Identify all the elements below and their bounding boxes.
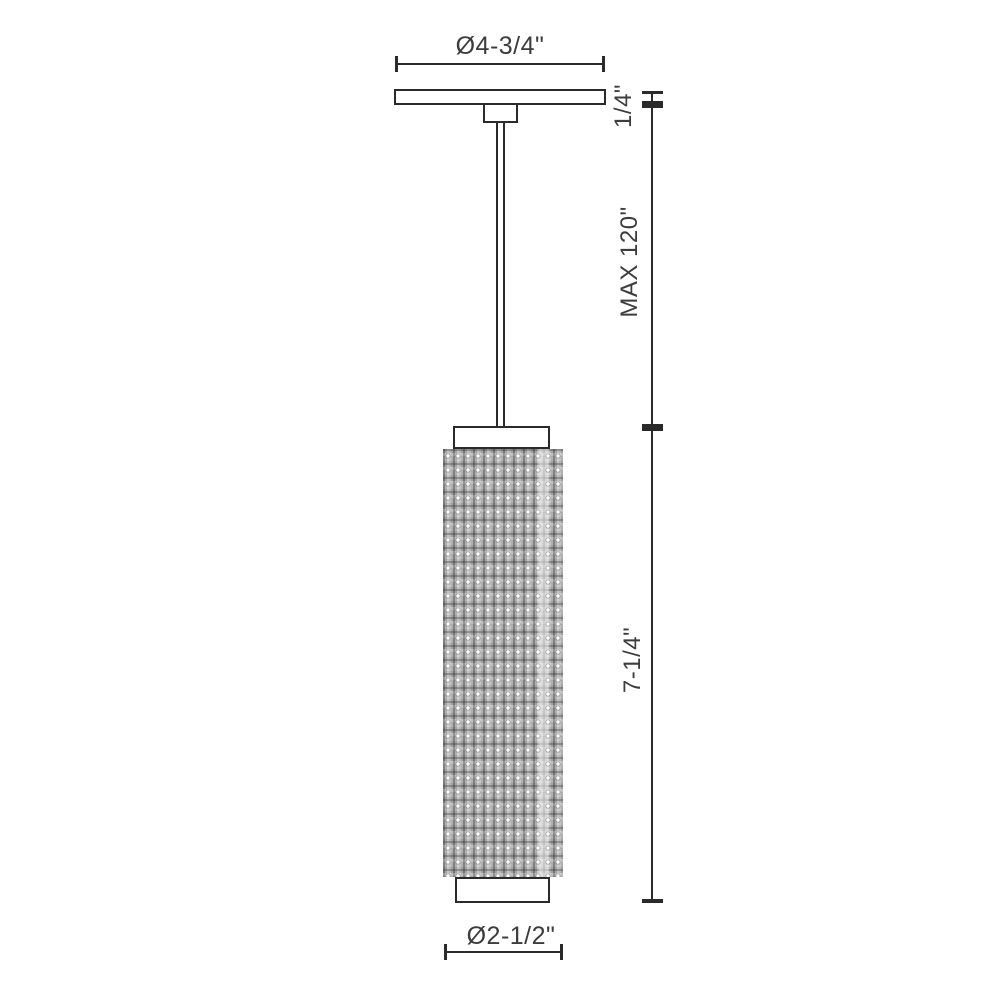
vertical-dimension-line [651,92,653,902]
canopy-diameter-label: Ø4-3/4" [396,32,604,61]
shade-top-cap [453,426,550,449]
dimension-tick [395,56,398,72]
canopy-diameter-dimension-line [396,63,604,65]
cylindrical-mesh-shade [443,449,563,877]
canopy-mounting-block [483,105,518,123]
shade-diameter-label: Ø2-1/2" [421,922,601,951]
dimension-tick [642,424,663,431]
shade-diameter-dimension-line [445,951,562,953]
canopy-thickness-label: 1/4" [610,84,638,128]
rod-max-length-label: MAX 120" [616,206,644,317]
dimension-tick [642,899,663,903]
dimension-tick [444,944,447,960]
shade-height-label: 7-1/4" [619,627,647,693]
dimension-tick [642,91,663,94]
ceiling-canopy [394,89,606,105]
dimension-tick [560,944,563,960]
dimension-tick [642,101,663,108]
dimension-tick [602,56,605,72]
suspension-rod [496,123,505,426]
dimension-drawing: Ø4-3/4" Ø2-1/2" 1/4" MAX 120" 7-1/4" [0,0,1000,1000]
shade-bottom-cap [455,877,550,903]
